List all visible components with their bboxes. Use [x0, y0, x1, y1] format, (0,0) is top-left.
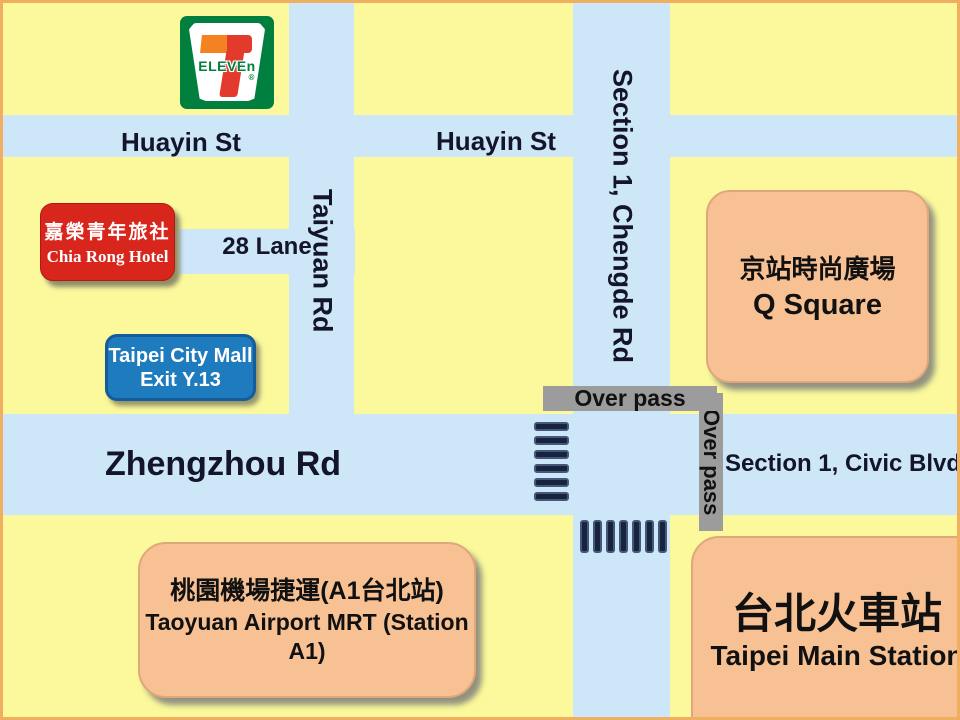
crosswalk-stripe — [632, 520, 641, 553]
crosswalk-stripe — [619, 520, 628, 553]
seven-eleven-logo: ELEVEn ® — [180, 16, 274, 109]
crosswalk-stripe — [645, 520, 654, 553]
airport-mrt-box: 桃園機場捷運(A1台北站) Taoyuan Airport MRT (Stati… — [138, 542, 476, 698]
crosswalk-stripe — [534, 478, 569, 487]
huayin-st-label-right: Huayin St — [403, 126, 589, 157]
overpass-vertical-label: Over pass — [698, 409, 724, 515]
chengde-rd-label: Section 1, Chengde Rd — [604, 67, 640, 365]
overpass-horizontal: Over pass — [543, 386, 717, 411]
crosswalk-stripe — [658, 520, 667, 553]
crosswalk-stripe — [534, 492, 569, 501]
crosswalk-west — [534, 422, 569, 501]
crosswalk-stripe — [606, 520, 615, 553]
mrt-name-chinese: 桃園機場捷運(A1台北站) — [170, 575, 444, 608]
crosswalk-south — [580, 520, 667, 553]
crosswalk-stripe — [593, 520, 602, 553]
28-lane-label: 28 Lane — [179, 233, 355, 261]
chia-rong-hotel-box: 嘉榮青年旅社 Chia Rong Hotel — [40, 203, 175, 281]
taipei-city-mall-box: Taipei City Mall Exit Y.13 — [105, 334, 256, 401]
location-map: Huayin St Huayin St Taiyuan Rd Section 1… — [0, 0, 960, 720]
q-square-name-chinese: 京站時尚廣場 — [739, 251, 895, 287]
crosswalk-stripe — [534, 450, 569, 459]
crosswalk-stripe — [534, 464, 569, 473]
crosswalk-stripe — [534, 436, 569, 445]
q-square-box: 京站時尚廣場 Q Square — [706, 190, 929, 383]
taiyuan-rd-label: Taiyuan Rd — [305, 187, 339, 335]
main-station-box: 台北火車站 Taipei Main Station — [691, 536, 960, 720]
hotel-name-chinese: 嘉榮青年旅社 — [44, 217, 170, 244]
civic-blvd-label: Section 1, Civic Blvd — [723, 450, 960, 478]
crosswalk-stripe — [534, 422, 569, 431]
station-name-chinese: 台北火車站 — [732, 590, 942, 638]
station-name-english: Taipei Main Station — [710, 638, 960, 674]
huayin-st-label-left: Huayin St — [91, 127, 271, 158]
zhengzhou-rd-label: Zhengzhou Rd — [73, 445, 373, 484]
crosswalk-stripe — [580, 520, 589, 553]
overpass-horizontal-label: Over pass — [574, 385, 685, 412]
seven-eleven-cup-shape: ELEVEn ® — [189, 23, 265, 101]
overpass-vertical: Over pass — [699, 393, 723, 531]
seven-digit-orange-segment — [200, 35, 229, 53]
mall-exit: Exit Y.13 — [140, 368, 221, 392]
q-square-name-english: Q Square — [753, 287, 882, 323]
mall-name: Taipei City Mall — [108, 344, 252, 368]
registered-mark: ® — [248, 73, 254, 82]
hotel-name-english: Chia Rong Hotel — [47, 247, 169, 267]
mrt-name-english: Taoyuan Airport MRT (Station A1) — [140, 608, 474, 666]
eleven-wordmark: ELEVEn — [189, 58, 265, 74]
